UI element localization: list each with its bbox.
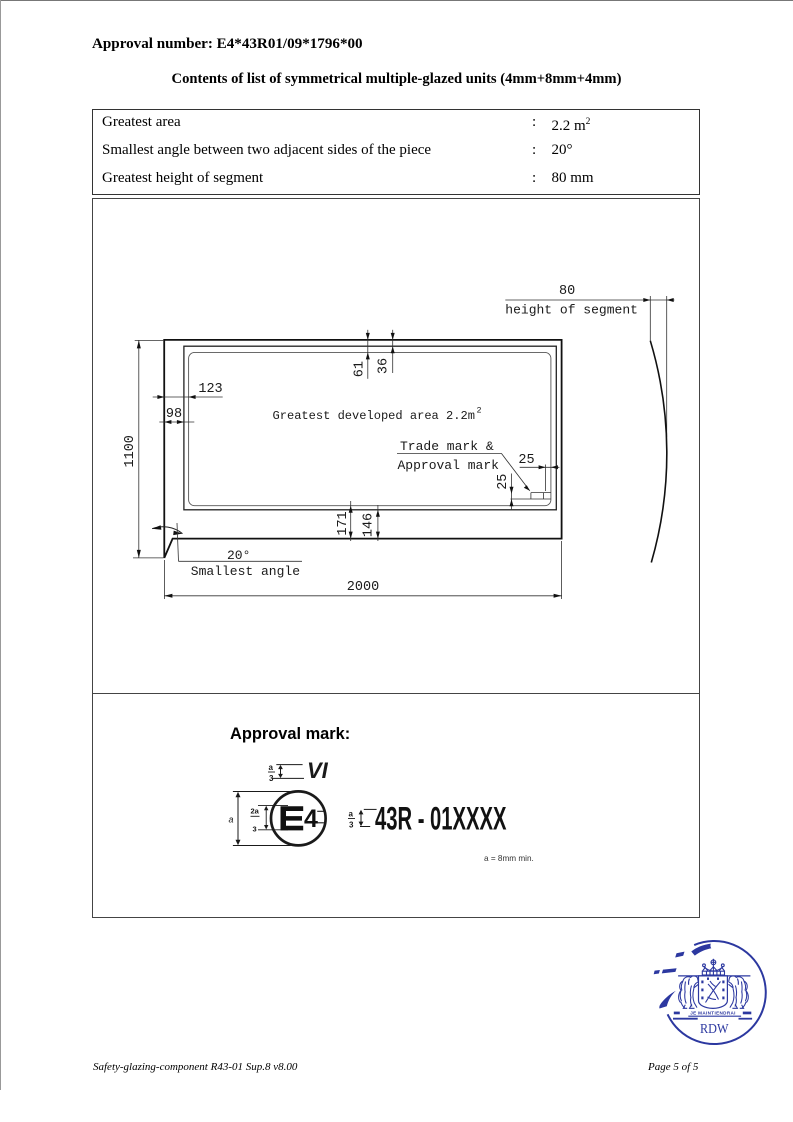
- svg-text:4: 4: [304, 805, 318, 833]
- svg-text:a: a: [229, 815, 234, 825]
- svg-text:2a: 2a: [251, 807, 260, 816]
- svg-text:3: 3: [253, 825, 257, 834]
- svg-text:VI: VI: [307, 758, 329, 783]
- svg-text:43R - 01XXXX: 43R - 01XXXX: [375, 801, 507, 837]
- svg-text:3: 3: [269, 774, 274, 783]
- svg-text:a: a: [269, 763, 274, 772]
- svg-text:JE MAINTIENDRAI: JE MAINTIENDRAI: [690, 1011, 736, 1016]
- svg-text:RDW: RDW: [700, 1022, 729, 1037]
- svg-text:a = 8mm min.: a = 8mm min.: [484, 854, 534, 863]
- svg-text:a: a: [349, 810, 354, 819]
- svg-text:3: 3: [349, 821, 354, 830]
